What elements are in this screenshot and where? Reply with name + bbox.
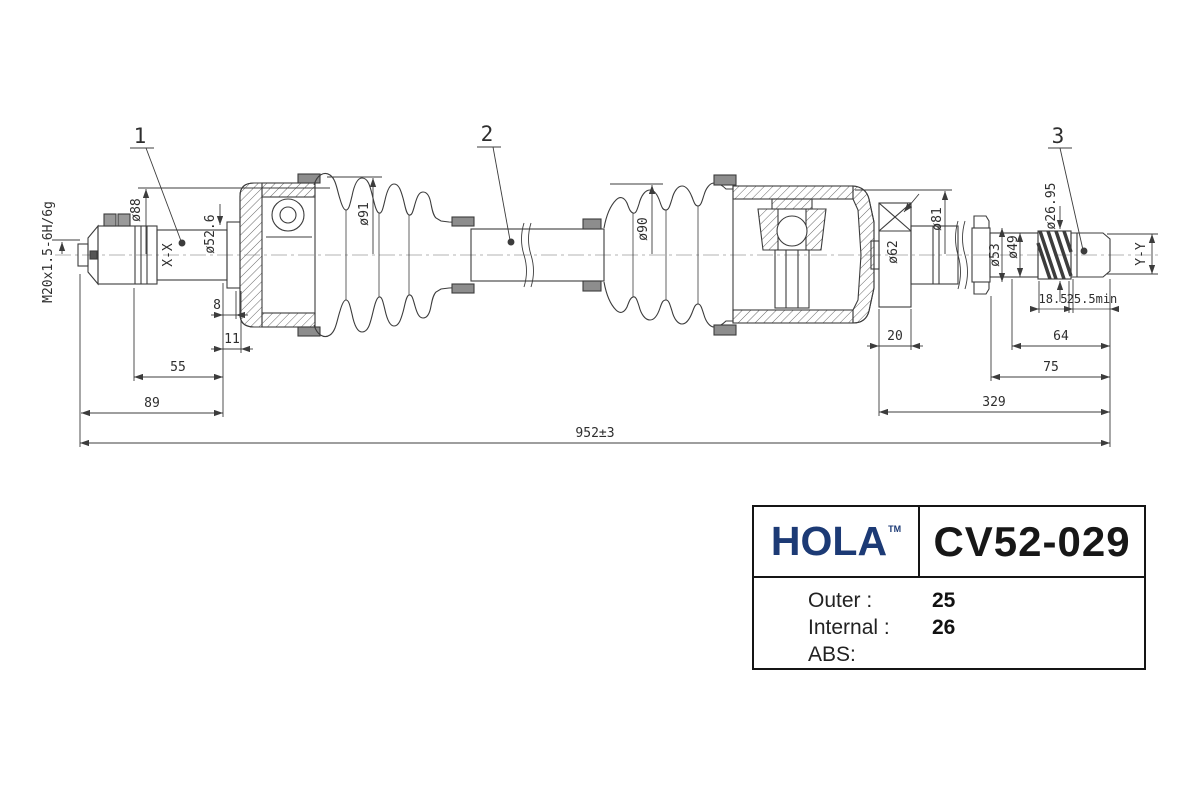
axle-technical-drawing: 1 2 3 M20x1.5-6H/6g X-X Y-Y ø88 ø52.6 ø9… xyxy=(0,0,1200,480)
dia-90-label: ø90 xyxy=(636,217,651,240)
hola-logo: HOLA xyxy=(771,518,887,565)
dia-62-label: ø62 xyxy=(886,240,901,263)
outer-label: Outer : xyxy=(808,587,932,614)
dia-26-95-label: ø26.95 xyxy=(1044,183,1059,230)
driveshaft-drawing-page: 1 2 3 M20x1.5-6H/6g X-X Y-Y ø88 ø52.6 ø9… xyxy=(0,0,1200,800)
bearing-ball xyxy=(272,199,304,231)
internal-value: 26 xyxy=(932,616,955,639)
dim-11-label: 11 xyxy=(224,332,240,347)
dim-55-label: 55 xyxy=(170,360,186,375)
dia-52-6-label: ø52.6 xyxy=(203,214,218,253)
dia-91-label: ø91 xyxy=(357,202,372,225)
thread-spec-label: M20x1.5-6H/6g xyxy=(41,201,56,303)
callout-1-label: 1 xyxy=(134,124,147,148)
abs-label: ABS: xyxy=(808,641,932,668)
dim-25-5-label: 25.5min xyxy=(1067,292,1118,306)
internal-label: Internal : xyxy=(808,614,932,641)
dim-18-5-label: 18.5 xyxy=(1039,292,1068,306)
dia-49-label: ø49 xyxy=(1006,235,1021,258)
dia-88-label: ø88 xyxy=(129,198,144,221)
spec-table: Outer :25 Internal :26 ABS: xyxy=(754,578,1144,668)
dia-81-label: ø81 xyxy=(930,207,945,230)
part-number-cell: CV52-029 xyxy=(920,507,1144,576)
dim-89-label: 89 xyxy=(144,396,160,411)
dia-53-label: ø53 xyxy=(988,243,1003,266)
hub-nut-assembly xyxy=(78,214,157,284)
boot-clamp-band xyxy=(452,217,474,226)
part-number: CV52-029 xyxy=(933,518,1130,566)
spec-row-internal: Internal :26 xyxy=(808,614,1144,641)
dim-total-label: 952±3 xyxy=(575,426,614,441)
dim-20-label: 20 xyxy=(887,329,903,344)
callout-2-label: 2 xyxy=(481,122,494,146)
trademark-mark: TM xyxy=(888,524,901,534)
dim-64-label: 64 xyxy=(1053,329,1069,344)
dim-8-label: 8 xyxy=(213,298,221,313)
title-plate-header: HOLATM CV52-029 xyxy=(754,507,1144,578)
spec-row-outer: Outer :25 xyxy=(808,587,1144,614)
boot-clamp-band xyxy=(583,219,601,229)
callout-3-label: 3 xyxy=(1052,124,1065,148)
brand-cell: HOLATM xyxy=(754,507,920,576)
section-x-label: X-X xyxy=(161,243,176,267)
dim-329-label: 329 xyxy=(982,395,1005,410)
callout-leaders xyxy=(130,147,1087,254)
outer-value: 25 xyxy=(932,589,955,612)
spec-row-abs: ABS: xyxy=(808,641,1144,668)
tripod-bearing xyxy=(772,199,812,209)
dim-75-label: 75 xyxy=(1043,360,1059,375)
inner-joint-housing xyxy=(733,186,879,323)
boot-clamp-band xyxy=(714,175,736,185)
title-plate: HOLATM CV52-029 Outer :25 Internal :26 A… xyxy=(752,505,1146,670)
section-y-label: Y-Y xyxy=(1134,242,1149,266)
